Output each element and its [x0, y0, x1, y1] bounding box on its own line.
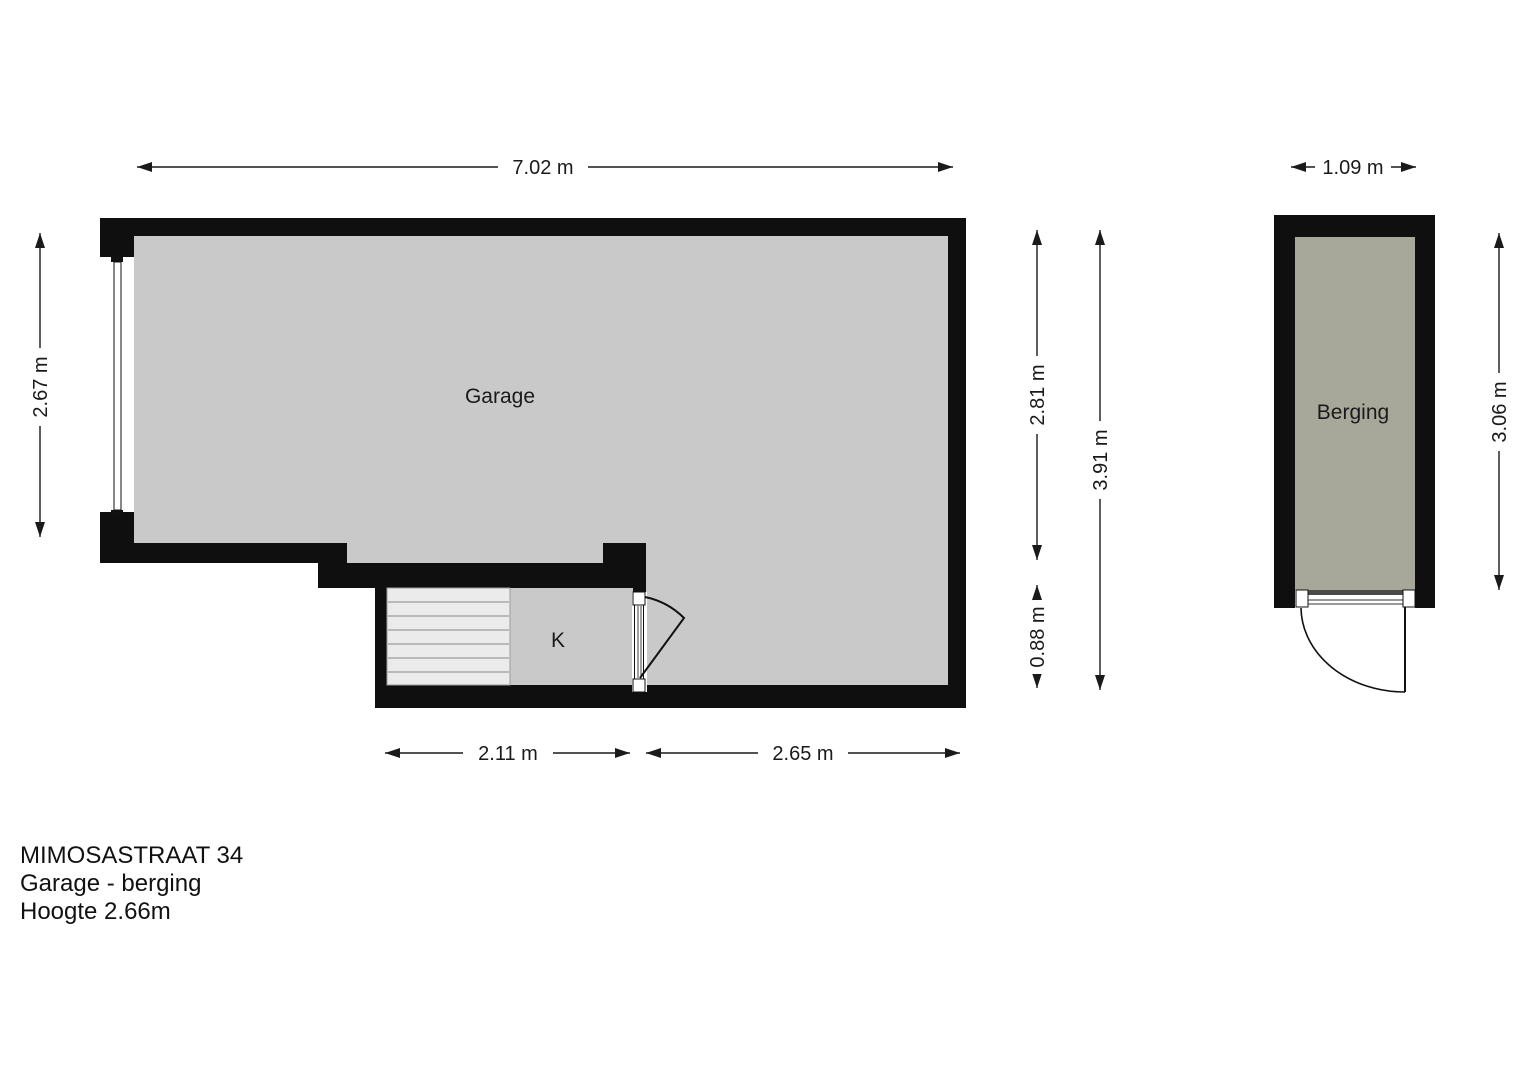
title-address: MIMOSASTRAAT 34 [20, 842, 243, 869]
dimension-garage-right-total-height: 3.91 m [1086, 230, 1114, 690]
dim-label: 7.02 m [512, 157, 573, 179]
storage-room [1274, 215, 1435, 692]
dimension-garage-bottom-left-width: 2.11 m [385, 740, 630, 766]
garage-room [100, 218, 966, 708]
dimension-garage-right-upper-height: 2.81 m [1023, 230, 1051, 560]
kitchen-door-leaf [635, 605, 644, 679]
storage-door [1295, 590, 1415, 692]
storage-door-jamb-right [1403, 590, 1415, 607]
dimension-garage-top-width: 7.02 m [137, 153, 953, 179]
dim-label: 2.11 m [478, 743, 538, 765]
floor-plan-page: 7.02 m 2.67 m 2.81 m 0.88 m 3.91 m 2.11 … [0, 0, 1528, 1080]
dim-label: 2.65 m [772, 743, 833, 765]
storage-door-swing-arc [1301, 608, 1405, 692]
title-subtitle: Garage - berging [20, 870, 201, 897]
floor-plan-canvas: 7.02 m 2.67 m 2.81 m 0.88 m 3.91 m 2.11 … [0, 0, 1528, 1080]
stairs [387, 588, 510, 685]
storage-door-jamb-left [1296, 590, 1308, 607]
kitchen-door-jamb-top [633, 592, 645, 605]
room-label-storage: Berging [1317, 401, 1389, 424]
dim-label: 3.06 m [1489, 381, 1511, 442]
window-glass [114, 262, 121, 510]
dim-label: 2.67 m [30, 356, 52, 417]
garage-window [100, 255, 134, 517]
room-label-garage: Garage [465, 385, 535, 408]
window-cap-top [111, 255, 123, 262]
dim-label: 3.91 m [1090, 429, 1112, 490]
dimension-storage-top-width: 1.09 m [1291, 153, 1416, 179]
kitchen-door-jamb-bottom [633, 679, 645, 692]
dimension-garage-right-lower-height: 0.88 m [1023, 585, 1051, 688]
dimension-garage-bottom-right-width: 2.65 m [646, 740, 960, 766]
storage-door-threshold [1308, 590, 1403, 595]
dim-label: 1.09 m [1322, 157, 1383, 179]
dim-label: 2.81 m [1027, 364, 1049, 425]
title-block: MIMOSASTRAAT 34 Garage - berging Hoogte … [20, 842, 243, 925]
dim-label: 0.88 m [1027, 606, 1049, 667]
dimension-garage-left-height: 2.67 m [26, 233, 54, 537]
title-height-note: Hoogte 2.66m [20, 898, 171, 925]
room-label-kitchen-nook: K [551, 629, 565, 652]
dimension-storage-right-height: 3.06 m [1485, 233, 1513, 590]
window-cap-bottom [111, 510, 123, 517]
